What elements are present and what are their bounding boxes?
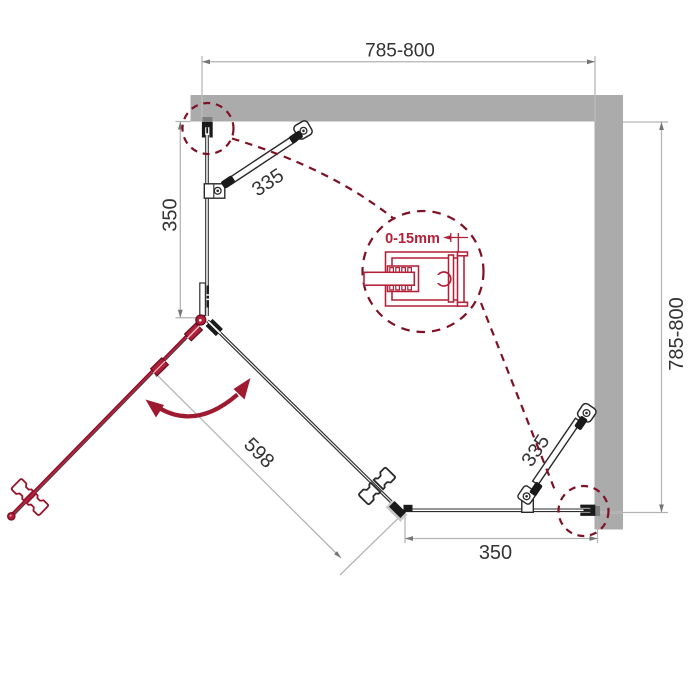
svg-text:350: 350 xyxy=(479,542,512,564)
svg-text:598: 598 xyxy=(239,434,278,473)
svg-text:785-800: 785-800 xyxy=(365,41,435,62)
svg-text:350: 350 xyxy=(160,198,182,231)
svg-text:785-800: 785-800 xyxy=(666,297,688,370)
svg-text:0-15mm: 0-15mm xyxy=(385,231,440,247)
